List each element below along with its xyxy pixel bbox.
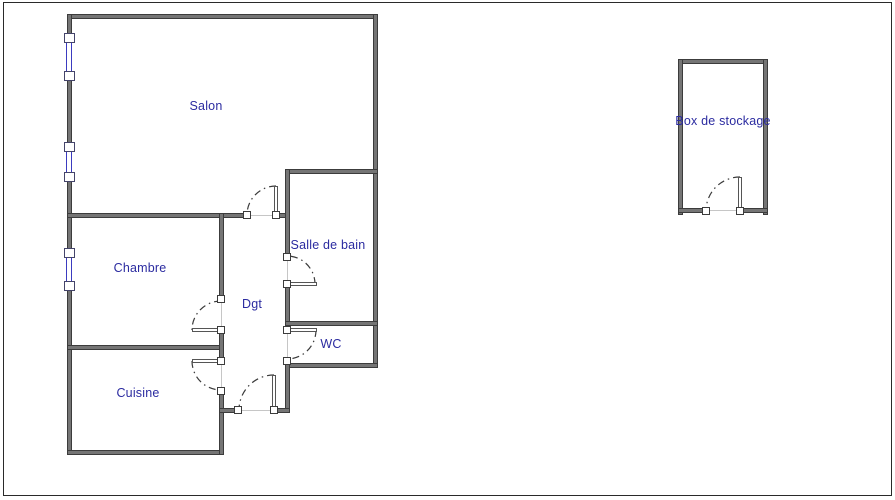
salon-window-upper-glass bbox=[66, 42, 72, 72]
room-label-salle-de-bain: Salle de bain bbox=[291, 238, 366, 252]
box-right-wall bbox=[763, 59, 768, 215]
chambre-door-threshold bbox=[221, 301, 222, 328]
door-arcs-layer bbox=[0, 0, 895, 500]
salon-window-lower-glass bbox=[66, 151, 72, 173]
chambre-door-jamb-hinge bbox=[217, 326, 225, 334]
salon-door-jamb-left bbox=[243, 211, 251, 219]
chambre-window-frame-bottom bbox=[64, 281, 75, 291]
apartment-top-wall bbox=[67, 14, 378, 19]
box-door-leaf bbox=[738, 177, 742, 211]
chambre-door-jamb-top bbox=[217, 295, 225, 303]
room-label-cuisine: Cuisine bbox=[116, 386, 159, 400]
bath-door-arc bbox=[287, 256, 315, 284]
salon-window-lower-frame-bottom bbox=[64, 172, 75, 182]
room-label-wc: WC bbox=[320, 337, 341, 351]
entry-door-threshold bbox=[240, 410, 272, 411]
box-top-wall bbox=[678, 59, 768, 64]
hall-left-wall-lower bbox=[219, 391, 224, 455]
salon-door-jamb-hinge bbox=[272, 211, 280, 219]
bath-door-jamb-top bbox=[283, 253, 291, 261]
wc-door-leaf bbox=[289, 328, 317, 332]
bathroom-left-wall-upper bbox=[285, 169, 290, 257]
box-left-wall bbox=[678, 59, 683, 215]
box-door-threshold bbox=[708, 210, 738, 211]
wc-door-jamb-bottom bbox=[283, 357, 291, 365]
cuisine-door-threshold bbox=[221, 363, 222, 389]
entry-door-jamb-left bbox=[234, 406, 242, 414]
cuisine-door-jamb-bottom bbox=[217, 387, 225, 395]
entry-right-wall bbox=[285, 361, 290, 412]
bath-door-threshold bbox=[287, 259, 288, 282]
entry-door-jamb-hinge bbox=[270, 406, 278, 414]
room-label-degagement: Dgt bbox=[242, 297, 262, 311]
bath-door-leaf bbox=[289, 282, 317, 286]
hall-left-wall-upper bbox=[219, 213, 224, 299]
wc-door-arc bbox=[287, 330, 316, 359]
box-door-arc bbox=[706, 177, 740, 211]
bathroom-top-wall bbox=[285, 169, 378, 174]
entry-door-arc bbox=[239, 375, 274, 410]
room-label-chambre: Chambre bbox=[114, 261, 167, 275]
box-door-jamb-hinge bbox=[736, 207, 744, 215]
cuisine-bottom-wall bbox=[67, 450, 224, 455]
wc-door-jamb-hinge bbox=[283, 326, 291, 334]
wc-bottom-wall bbox=[285, 363, 378, 368]
floor-plan: SalonChambreCuisineDgtSalle de bainWCBox… bbox=[0, 0, 895, 500]
room-label-box-stockage: Box de stockage bbox=[675, 114, 770, 128]
room-label-salon: Salon bbox=[190, 99, 223, 113]
wc-door-threshold bbox=[287, 332, 288, 359]
entry-door-leaf bbox=[272, 375, 276, 410]
salon-window-upper-frame-bottom bbox=[64, 71, 75, 81]
apartment-right-wall bbox=[373, 14, 378, 367]
chambre-cuisine-wall bbox=[67, 345, 224, 350]
chambre-window-glass bbox=[66, 257, 72, 282]
cuisine-door-arc bbox=[192, 361, 221, 390]
bathroom-wc-divider-wall bbox=[285, 321, 378, 326]
chambre-window-frame-top bbox=[64, 248, 75, 258]
salon-window-lower-frame-top bbox=[64, 142, 75, 152]
box-door-jamb-left bbox=[702, 207, 710, 215]
bath-door-jamb-hinge bbox=[283, 280, 291, 288]
salon-window-upper-frame-top bbox=[64, 33, 75, 43]
cuisine-door-jamb-hinge bbox=[217, 357, 225, 365]
